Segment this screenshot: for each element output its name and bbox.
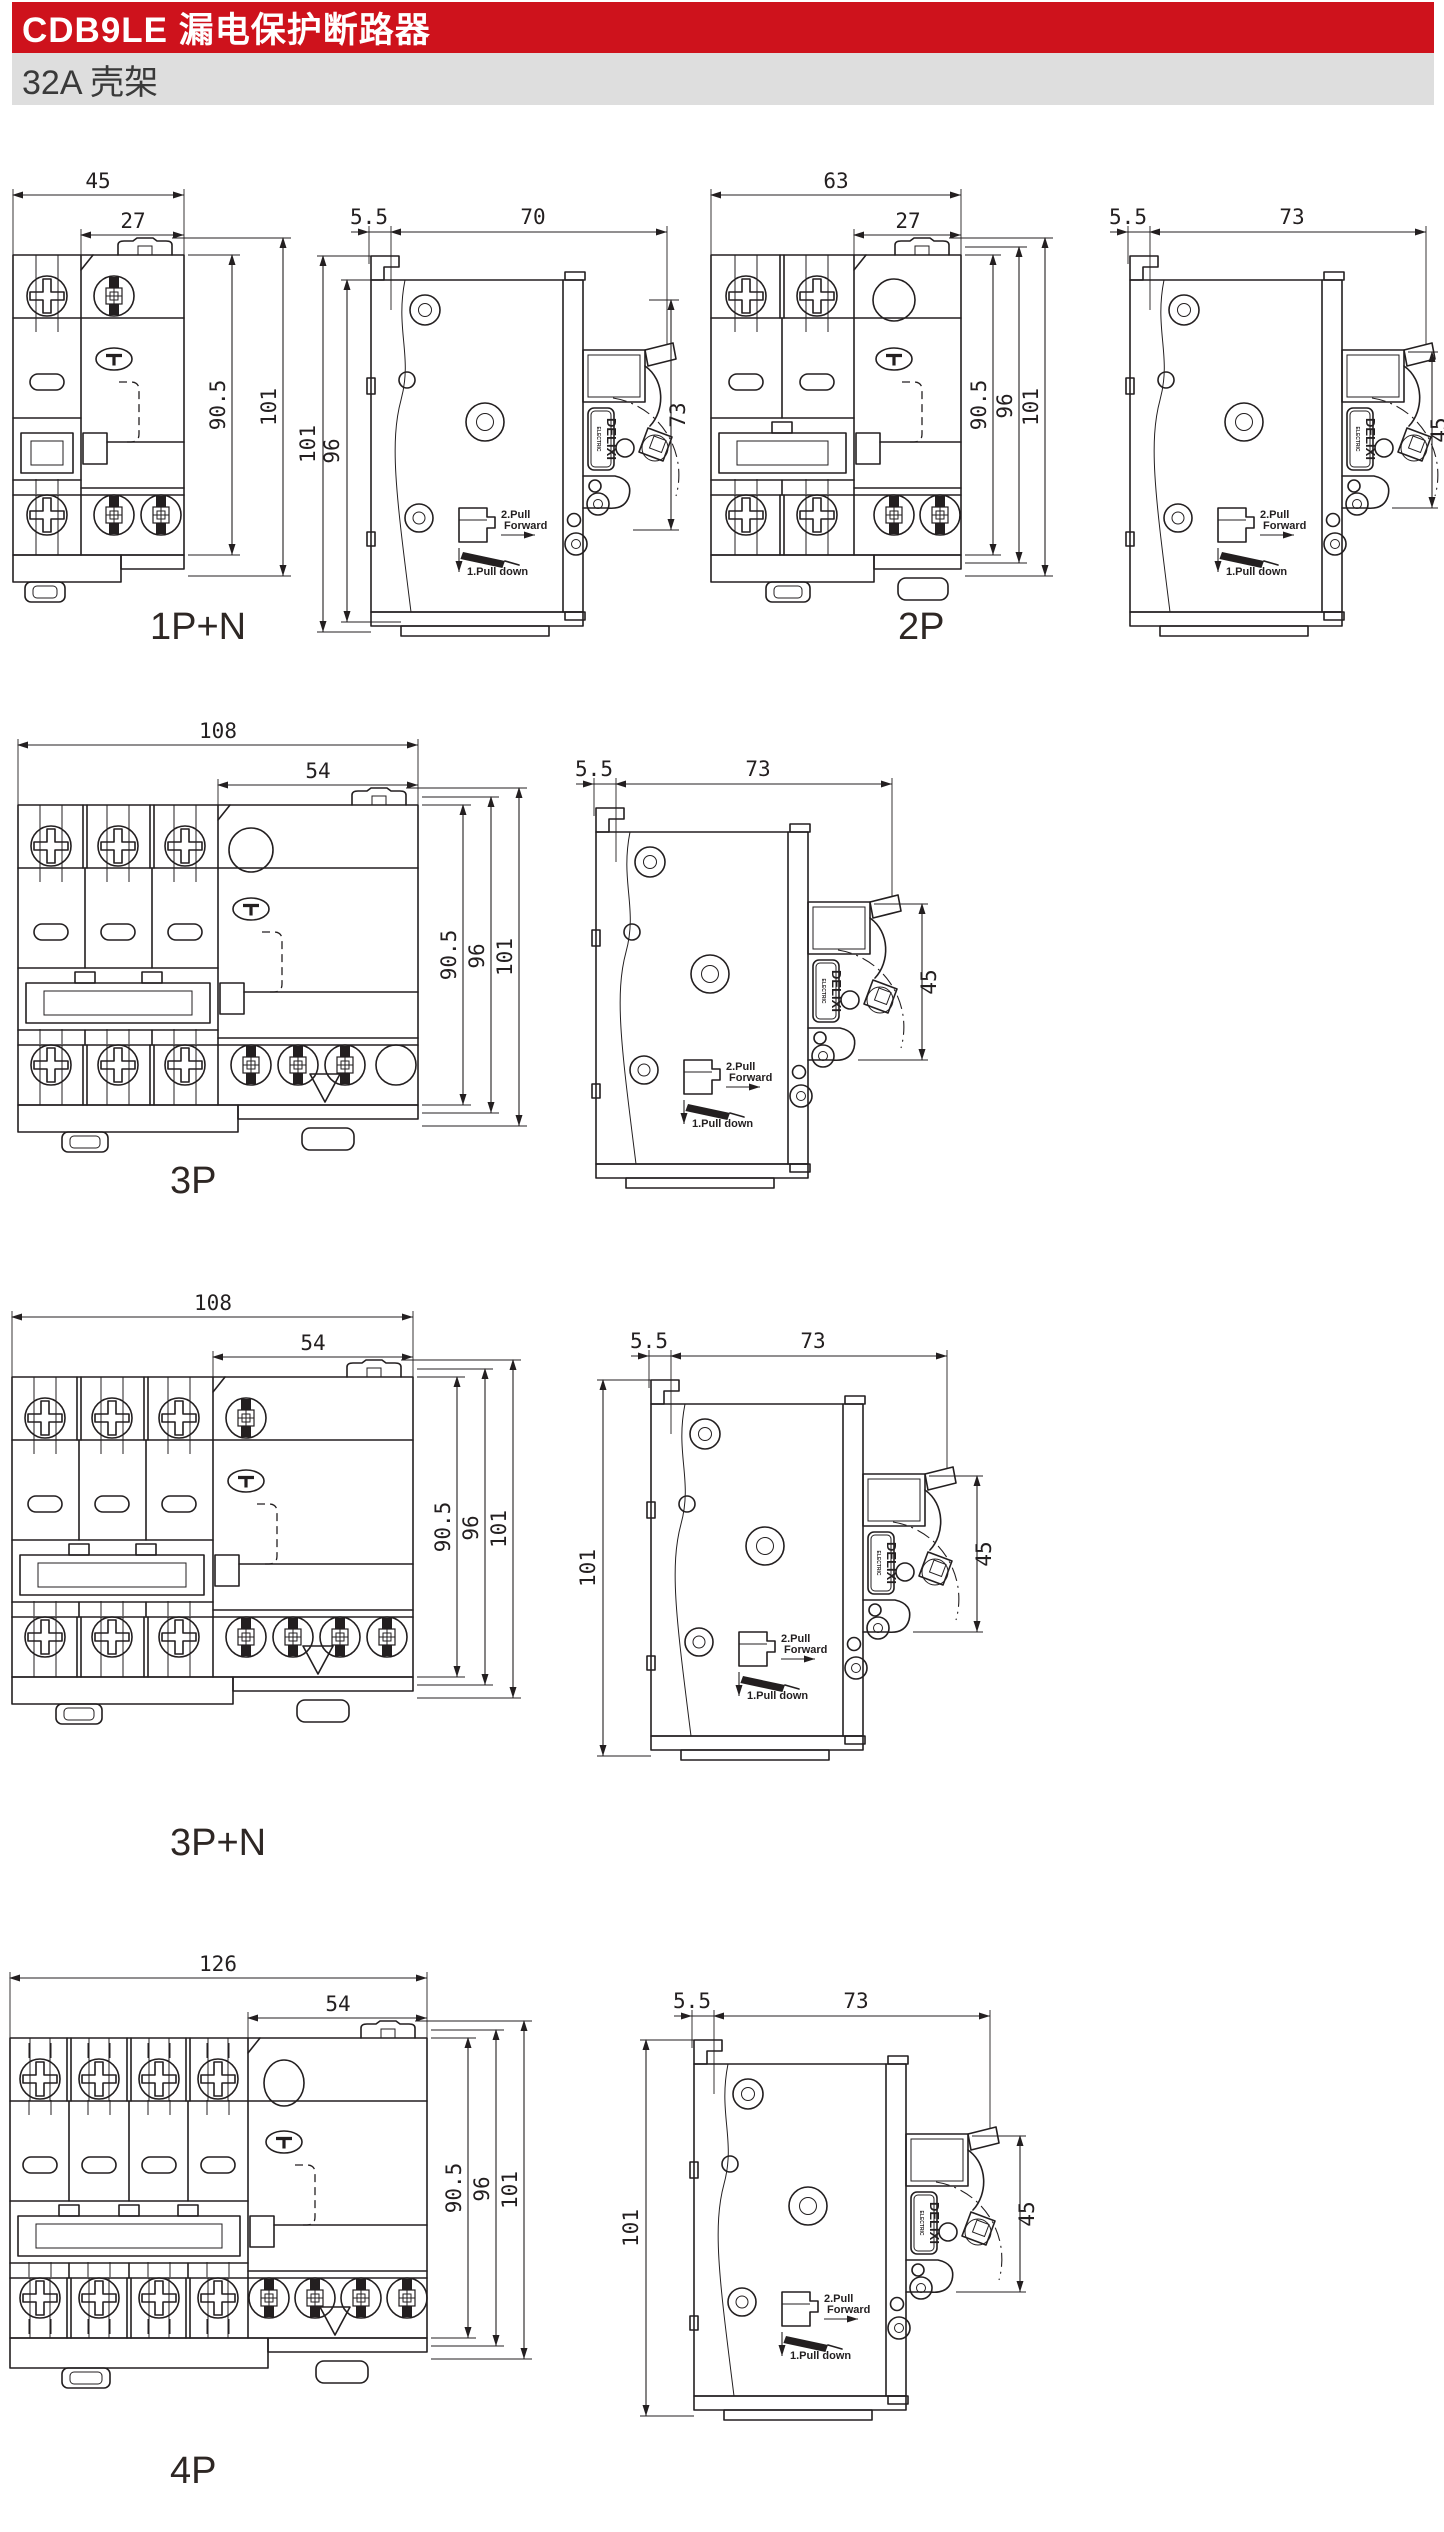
front-view-4p: 126 54 90.5 96 101 xyxy=(0,1933,548,2433)
figure-caption-4p: 4P xyxy=(170,2450,216,2493)
dim-left-inner: 96 xyxy=(320,438,344,463)
body-front-4p xyxy=(10,2021,427,2388)
dim-right: 45 xyxy=(917,969,941,994)
dim-h-overall: 101 xyxy=(493,938,517,976)
dim-h-overall: 101 xyxy=(498,2171,522,2209)
header-title-bar: CDB9LE 漏电保护断路器 xyxy=(12,2,1434,53)
front-view-3pn: 108 54 90.5 96 101 xyxy=(0,1272,545,1792)
dim-total: 126 xyxy=(199,1952,237,1976)
dim-group-side-2p: 5.5 73 45 xyxy=(1109,205,1444,508)
dim-total: 63 xyxy=(823,169,848,193)
dim-module: 54 xyxy=(300,1331,325,1355)
dim-module: 27 xyxy=(895,209,920,233)
dim-h-mid: 96 xyxy=(993,393,1017,418)
dim-rail: 5.5 xyxy=(673,1989,711,2013)
dim-depth: 73 xyxy=(745,757,770,781)
dim-h-overall: 101 xyxy=(487,1510,511,1548)
datasheet-page: CDB9LE 漏电保护断路器 32A 壳架 xyxy=(0,0,1444,2532)
front-view-1pn: 45 27 90.5 101 xyxy=(0,150,312,665)
side-profile-use xyxy=(1126,256,1438,636)
page-title: CDB9LE 漏电保护断路器 xyxy=(12,2,431,53)
dim-h-body: 90.5 xyxy=(206,380,230,431)
dim-right: 45 xyxy=(1015,2201,1039,2226)
body-front-3p xyxy=(18,788,418,1152)
dim-right: 73 xyxy=(666,402,690,427)
dim-depth: 73 xyxy=(843,1989,868,2013)
figure-caption-2p: 2P xyxy=(898,606,944,649)
header-subtitle-bar: 32A 壳架 xyxy=(12,53,1434,105)
dim-h-body: 90.5 xyxy=(431,1502,455,1553)
figure-caption-1pn: 1P+N xyxy=(150,606,246,649)
dim-right: 45 xyxy=(1427,417,1444,442)
dim-right: 45 xyxy=(972,1541,996,1566)
side-profile-use xyxy=(367,256,679,636)
dim-h-mid: 96 xyxy=(470,2176,494,2201)
dim-h-body: 90.5 xyxy=(442,2163,466,2214)
dim-rail: 5.5 xyxy=(350,205,388,229)
side-view-3pn: 5.5 73 45 101 xyxy=(545,1282,995,1782)
dim-depth: 73 xyxy=(800,1329,825,1353)
side-profile-use xyxy=(690,2040,1002,2420)
dim-rail: 5.5 xyxy=(575,757,613,781)
figure-caption-3pn: 3P+N xyxy=(170,1822,266,1865)
side-view-3p: 5.5 73 45 xyxy=(528,712,948,1182)
dim-h-mid: 96 xyxy=(465,943,489,968)
side-profile-use xyxy=(592,808,904,1188)
dim-h-body: 90.5 xyxy=(437,930,461,981)
dim-left-outer: 101 xyxy=(576,1549,600,1587)
front-view-2p: 63 27 90.5 96 101 xyxy=(688,150,1083,665)
dim-depth: 70 xyxy=(520,205,545,229)
dim-h-mid: 96 xyxy=(459,1515,483,1540)
dim-total: 108 xyxy=(194,1291,232,1315)
dim-left-outer: 101 xyxy=(296,425,320,463)
figure-caption-3p: 3P xyxy=(170,1160,216,1203)
dim-rail: 5.5 xyxy=(630,1329,668,1353)
body-front-1pn xyxy=(13,238,184,602)
dim-rail: 5.5 xyxy=(1109,205,1147,229)
body-front-2p xyxy=(711,238,961,602)
dim-depth: 73 xyxy=(1279,205,1304,229)
page-subtitle: 32A 壳架 xyxy=(12,55,158,104)
side-profile-use xyxy=(647,1380,959,1760)
dim-h-body: 90.5 xyxy=(967,380,991,431)
side-view-2p: 5.5 73 45 xyxy=(1078,162,1444,632)
dim-module: 54 xyxy=(305,759,330,783)
dim-total: 108 xyxy=(199,719,237,743)
front-view-3p: 108 54 90.5 96 101 xyxy=(0,700,545,1200)
dim-group-front-1pn: 45 27 90.5 101 xyxy=(13,169,291,576)
dim-module: 54 xyxy=(325,1992,350,2016)
dim-left-outer: 101 xyxy=(619,2209,643,2247)
side-view-4p: 5.5 73 45 101 xyxy=(598,1942,1058,2442)
side-view-1pn: 5.5 70 73 101 96 xyxy=(272,162,692,632)
dim-total: 45 xyxy=(85,169,110,193)
dim-h-overall: 101 xyxy=(1019,388,1043,426)
dim-module: 27 xyxy=(120,209,145,233)
dim-group-front-3p: 108 54 90.5 96 101 xyxy=(18,719,527,1126)
body-front-3pn xyxy=(12,1360,413,1724)
